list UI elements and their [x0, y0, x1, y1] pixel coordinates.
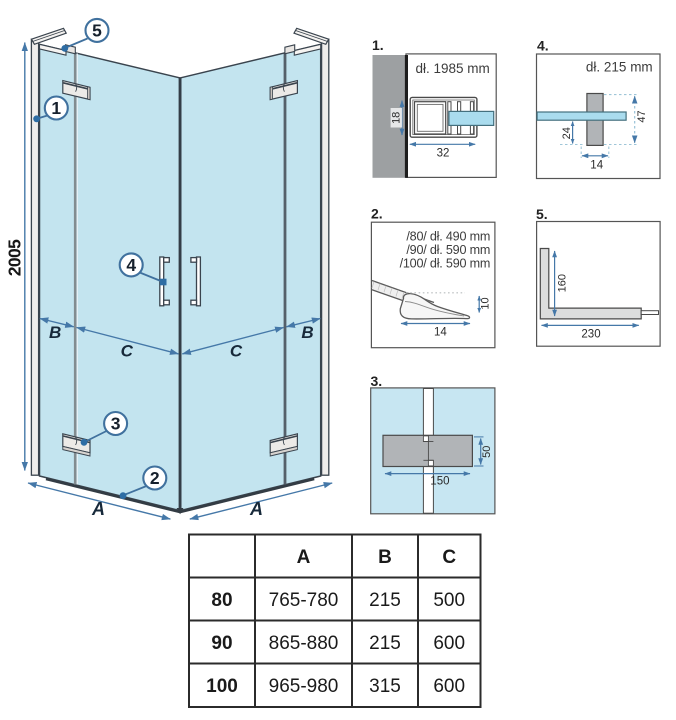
svg-text:47: 47 — [636, 110, 648, 122]
svg-text:C: C — [442, 547, 456, 568]
svg-text:5.: 5. — [536, 206, 548, 222]
svg-text:965-980: 965-980 — [269, 676, 339, 697]
svg-text:150: 150 — [430, 476, 449, 488]
svg-text:1: 1 — [51, 98, 61, 118]
svg-text:765-780: 765-780 — [269, 590, 339, 611]
svg-text:10: 10 — [479, 297, 491, 309]
svg-text:215: 215 — [369, 590, 401, 611]
svg-text:600: 600 — [433, 676, 465, 697]
svg-text:600: 600 — [433, 633, 465, 654]
svg-text:B: B — [49, 323, 61, 342]
svg-text:14: 14 — [434, 327, 447, 339]
svg-text:A: A — [249, 499, 263, 519]
svg-text:2: 2 — [150, 468, 160, 488]
svg-text:2005: 2005 — [4, 239, 24, 276]
svg-text:32: 32 — [437, 148, 450, 160]
svg-text:/90/ dł. 590 mm: /90/ dł. 590 mm — [406, 243, 490, 257]
svg-text:A: A — [297, 547, 311, 568]
svg-text:/100/ dł. 590 mm: /100/ dł. 590 mm — [400, 256, 491, 270]
svg-text:1.: 1. — [372, 37, 384, 53]
svg-text:500: 500 — [433, 590, 465, 611]
svg-text:80: 80 — [211, 590, 232, 611]
svg-text:2.: 2. — [371, 206, 383, 222]
svg-text:865-880: 865-880 — [269, 633, 339, 654]
svg-text:4.: 4. — [537, 38, 549, 54]
svg-text:/80/ dł. 490 mm: /80/ dł. 490 mm — [406, 230, 490, 244]
svg-text:dł. 1985 mm: dł. 1985 mm — [416, 61, 490, 76]
svg-text:3: 3 — [111, 414, 121, 434]
svg-text:14: 14 — [590, 160, 603, 172]
svg-text:100: 100 — [206, 676, 238, 697]
svg-text:4: 4 — [126, 255, 136, 275]
svg-text:90: 90 — [211, 633, 232, 654]
svg-text:24: 24 — [561, 127, 573, 139]
svg-text:B: B — [378, 547, 392, 568]
svg-text:50: 50 — [481, 446, 493, 458]
svg-text:18: 18 — [390, 112, 402, 124]
svg-text:230: 230 — [581, 329, 600, 341]
svg-text:dł. 215 mm: dł. 215 mm — [586, 60, 653, 75]
svg-text:C: C — [121, 342, 134, 361]
svg-text:3.: 3. — [371, 373, 383, 389]
svg-text:5: 5 — [92, 20, 102, 40]
svg-text:160: 160 — [556, 274, 568, 292]
svg-text:A: A — [91, 499, 105, 519]
svg-text:315: 315 — [369, 676, 401, 697]
svg-text:C: C — [230, 342, 243, 361]
svg-text:215: 215 — [369, 633, 401, 654]
svg-text:B: B — [301, 323, 313, 342]
